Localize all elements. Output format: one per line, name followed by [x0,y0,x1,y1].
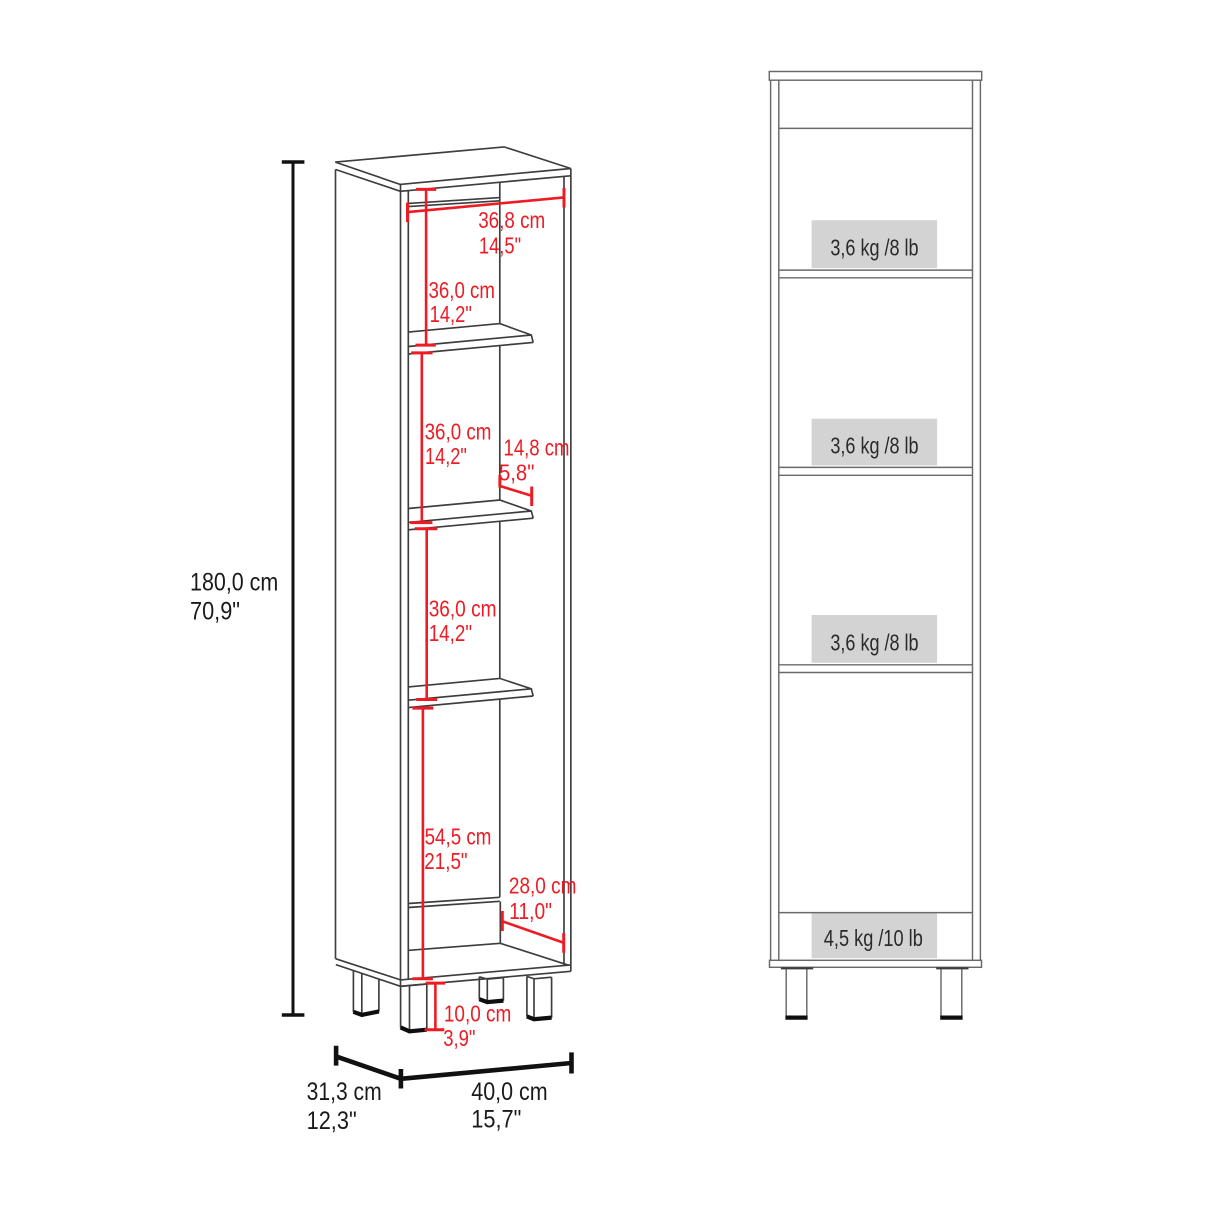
svg-text:31,3 cm: 31,3 cm [307,1078,382,1106]
svg-text:10,0 cm: 10,0 cm [444,1001,511,1027]
svg-text:5,8": 5,8" [499,459,534,485]
svg-text:14,5": 14,5" [479,232,521,258]
svg-text:14,2": 14,2" [429,620,472,646]
svg-text:21,5": 21,5" [424,848,467,874]
svg-text:40,0 cm: 40,0 cm [471,1078,547,1106]
svg-text:14,2": 14,2" [430,301,472,327]
svg-text:4,5 kg /10 lb: 4,5 kg /10 lb [824,925,923,951]
svg-text:28,0 cm: 28,0 cm [509,872,577,898]
svg-text:3,9": 3,9" [443,1025,475,1051]
svg-text:3,6 kg /8 lb: 3,6 kg /8 lb [830,432,918,458]
svg-text:36,0 cm: 36,0 cm [429,596,497,622]
svg-text:36,0 cm: 36,0 cm [425,419,492,445]
svg-text:70,9": 70,9" [190,597,240,625]
svg-text:180,0 cm: 180,0 cm [190,568,278,596]
svg-text:15,7": 15,7" [471,1106,521,1134]
svg-text:3,6 kg /8 lb: 3,6 kg /8 lb [830,234,918,260]
svg-text:14,8 cm: 14,8 cm [504,435,570,461]
svg-text:36,0 cm: 36,0 cm [429,277,495,303]
svg-text:36,8 cm: 36,8 cm [478,207,545,233]
svg-text:14,2": 14,2" [425,443,467,469]
svg-text:12,3": 12,3" [307,1107,357,1135]
svg-text:3,6 kg /8 lb: 3,6 kg /8 lb [830,629,918,655]
svg-text:54,5 cm: 54,5 cm [425,823,492,849]
svg-text:11,0": 11,0" [509,898,552,924]
